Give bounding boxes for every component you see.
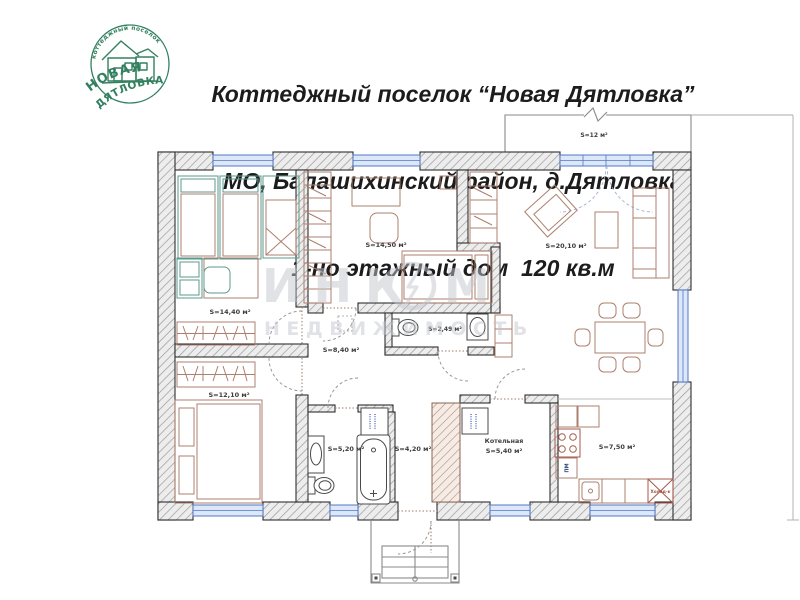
washing-machine bbox=[462, 408, 488, 434]
kitchen-furniture: ПМ Холод-к bbox=[555, 406, 673, 503]
chest bbox=[177, 258, 202, 298]
window-top-2 bbox=[353, 155, 420, 166]
chair bbox=[370, 213, 398, 243]
room-area-label-corridor: S=8,40 м² bbox=[323, 346, 360, 354]
dishwasher: ПМ bbox=[556, 458, 577, 478]
cabinet bbox=[556, 406, 577, 427]
window-bottom-1 bbox=[193, 505, 263, 516]
dining-set bbox=[575, 303, 663, 372]
room-area-label-kitchen: S=7,50 м² bbox=[599, 443, 636, 451]
kitchen-sink bbox=[582, 482, 599, 500]
watermark-line2: НЕДВИЖИМОСТЬ bbox=[264, 318, 534, 340]
wardrobe bbox=[177, 362, 255, 387]
watermark-word-part1: ИНК bbox=[262, 259, 416, 313]
terrace-outline bbox=[505, 107, 691, 152]
window-bottom-2 bbox=[330, 505, 358, 516]
room-area-label-bathroom: S=5,20 м² bbox=[328, 445, 365, 453]
room-area-label-bedroom1: S=14,40 м² bbox=[209, 308, 250, 316]
entrance-porch bbox=[371, 520, 459, 583]
window-right bbox=[678, 290, 688, 382]
room-area-label-boiler: S=5,40 м² bbox=[486, 447, 523, 455]
window-bottom-4 bbox=[590, 505, 655, 516]
desk bbox=[352, 178, 400, 206]
closet bbox=[470, 172, 497, 243]
dining-table bbox=[595, 322, 645, 353]
wardrobe bbox=[177, 322, 255, 345]
window-bottom-3 bbox=[490, 505, 530, 516]
bathroom-furniture bbox=[308, 408, 390, 504]
stove bbox=[555, 429, 580, 457]
chair bbox=[204, 267, 230, 293]
cabinet bbox=[578, 406, 599, 427]
room-area-label-bedroom3: S=12,10 м² bbox=[208, 391, 249, 399]
floor-plan: ПМ Холод-к bbox=[0, 0, 800, 600]
room-area-label-terrace: S=12 м² bbox=[580, 132, 608, 139]
boiler-furniture bbox=[462, 408, 488, 434]
washing-machine bbox=[361, 408, 388, 435]
fridge-label: Холод-к bbox=[650, 489, 670, 494]
crib bbox=[263, 176, 299, 258]
watermark-word-part2: М bbox=[444, 259, 503, 313]
chimney-shaft bbox=[432, 403, 460, 502]
window-top-1 bbox=[213, 155, 273, 166]
nightstand bbox=[440, 176, 456, 189]
watermark: ИНК М НЕДВИЖИМОСТЬ bbox=[262, 259, 534, 340]
dishwasher-label: ПМ bbox=[565, 463, 571, 472]
french-door bbox=[560, 155, 653, 212]
sofa bbox=[633, 188, 669, 278]
room-area-label-bedroom2: S=14,50 м² bbox=[365, 241, 406, 249]
dimension-lines bbox=[691, 115, 799, 520]
desk bbox=[204, 258, 258, 298]
fridge: Холод-к bbox=[648, 479, 673, 503]
toilet bbox=[308, 477, 334, 494]
floor-plan-page: { "header": { "line1": "Коттеджный посел… bbox=[0, 0, 800, 600]
room-area-label-hall: S=4,20 м² bbox=[395, 445, 432, 453]
sink bbox=[308, 436, 324, 473]
double-bed bbox=[175, 400, 262, 503]
coffee-table bbox=[595, 212, 618, 248]
room-name-label-boiler: Котельная bbox=[485, 438, 524, 445]
bedroom3-furniture bbox=[175, 362, 262, 503]
room-area-label-living: S=20,10 м² bbox=[545, 242, 586, 250]
kitchen-counter bbox=[579, 479, 648, 503]
